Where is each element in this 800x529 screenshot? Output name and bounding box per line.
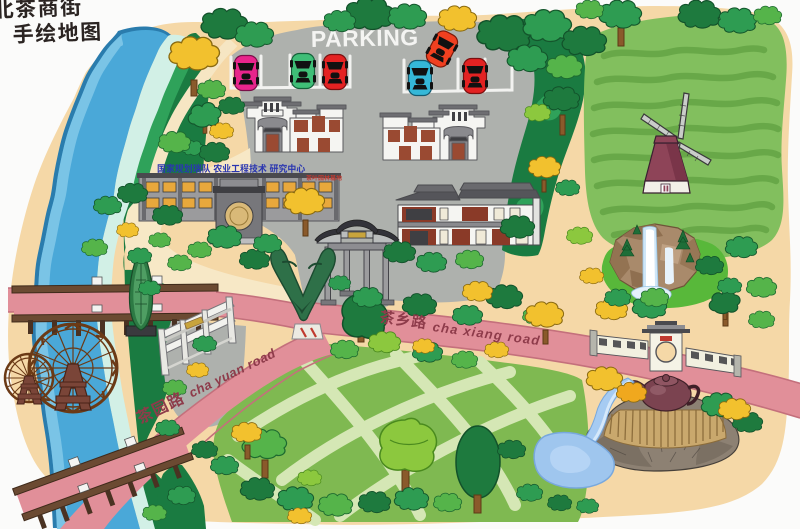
svg-text:PARKING: PARKING [311,24,419,52]
